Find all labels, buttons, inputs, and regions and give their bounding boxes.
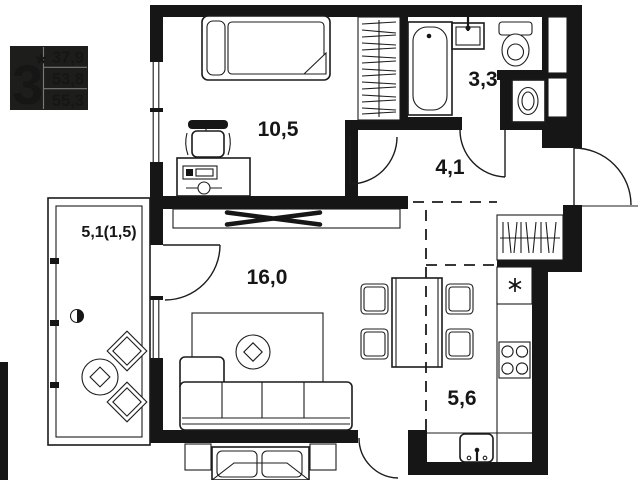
- vent-shafts: [548, 17, 567, 117]
- bed: [202, 16, 330, 80]
- kitchen: 5,6: [361, 267, 532, 462]
- living-room: 16,0: [163, 209, 400, 430]
- fridge: [497, 267, 532, 304]
- stove: [499, 342, 530, 378]
- badge-area-living: 53,8: [52, 71, 84, 89]
- coffee-table: [236, 335, 270, 369]
- balcony-door-arc: [165, 245, 220, 300]
- bathroom-area-label: 3,3: [468, 68, 497, 91]
- hallway-area-label: 4,1: [435, 156, 465, 179]
- hallway: 4,1: [350, 130, 638, 430]
- living-room-area-label: 16,0: [247, 266, 288, 289]
- neighbor-door-arc: [359, 438, 398, 478]
- balcony-table: [82, 359, 118, 395]
- badge-asterisk: *: [36, 48, 47, 78]
- badge-area-total: 37,9: [52, 49, 84, 67]
- neighbor-unit-fragment: [185, 438, 398, 480]
- kitchen-area-label: 5,6: [447, 387, 476, 410]
- bathroom: 3,3: [408, 17, 545, 122]
- sofa: [180, 357, 352, 430]
- bedroom-area-label: 10,5: [258, 118, 299, 141]
- bathroom-sink: [452, 17, 484, 49]
- badge-area-full: 55,3: [52, 92, 84, 110]
- bedroom-window: [150, 58, 163, 166]
- balcony-area-label: 5,1(1,5): [81, 224, 136, 241]
- balcony-lamp-icon: [71, 310, 84, 323]
- washing-machine: [512, 80, 545, 122]
- kitchen-sink: [460, 434, 493, 462]
- dining-chair: [361, 329, 388, 359]
- dining-chair: [361, 284, 388, 314]
- living-room-window: [150, 296, 163, 362]
- dining-chair: [446, 284, 473, 314]
- bathroom-door-arc: [460, 130, 505, 177]
- bedroom: 10,5: [177, 16, 400, 196]
- desk: [177, 158, 250, 196]
- floor-plan: 10,5 3,3: [0, 0, 639, 480]
- toilet: [499, 22, 532, 66]
- bathtub: [408, 22, 452, 115]
- hall-closet-hangers: [497, 215, 563, 260]
- desk-chair: [186, 120, 231, 157]
- info-badge: 3 * 37,9 53,8 55,3: [10, 46, 88, 116]
- wardrobe-hangers: [358, 17, 400, 120]
- dining-chair: [446, 329, 473, 359]
- sliding-wardrobe: [173, 209, 400, 228]
- floor-plan-page: 10,5 3,3: [0, 0, 639, 480]
- entrance-door-arc: [574, 148, 631, 205]
- dining-table: [392, 278, 442, 367]
